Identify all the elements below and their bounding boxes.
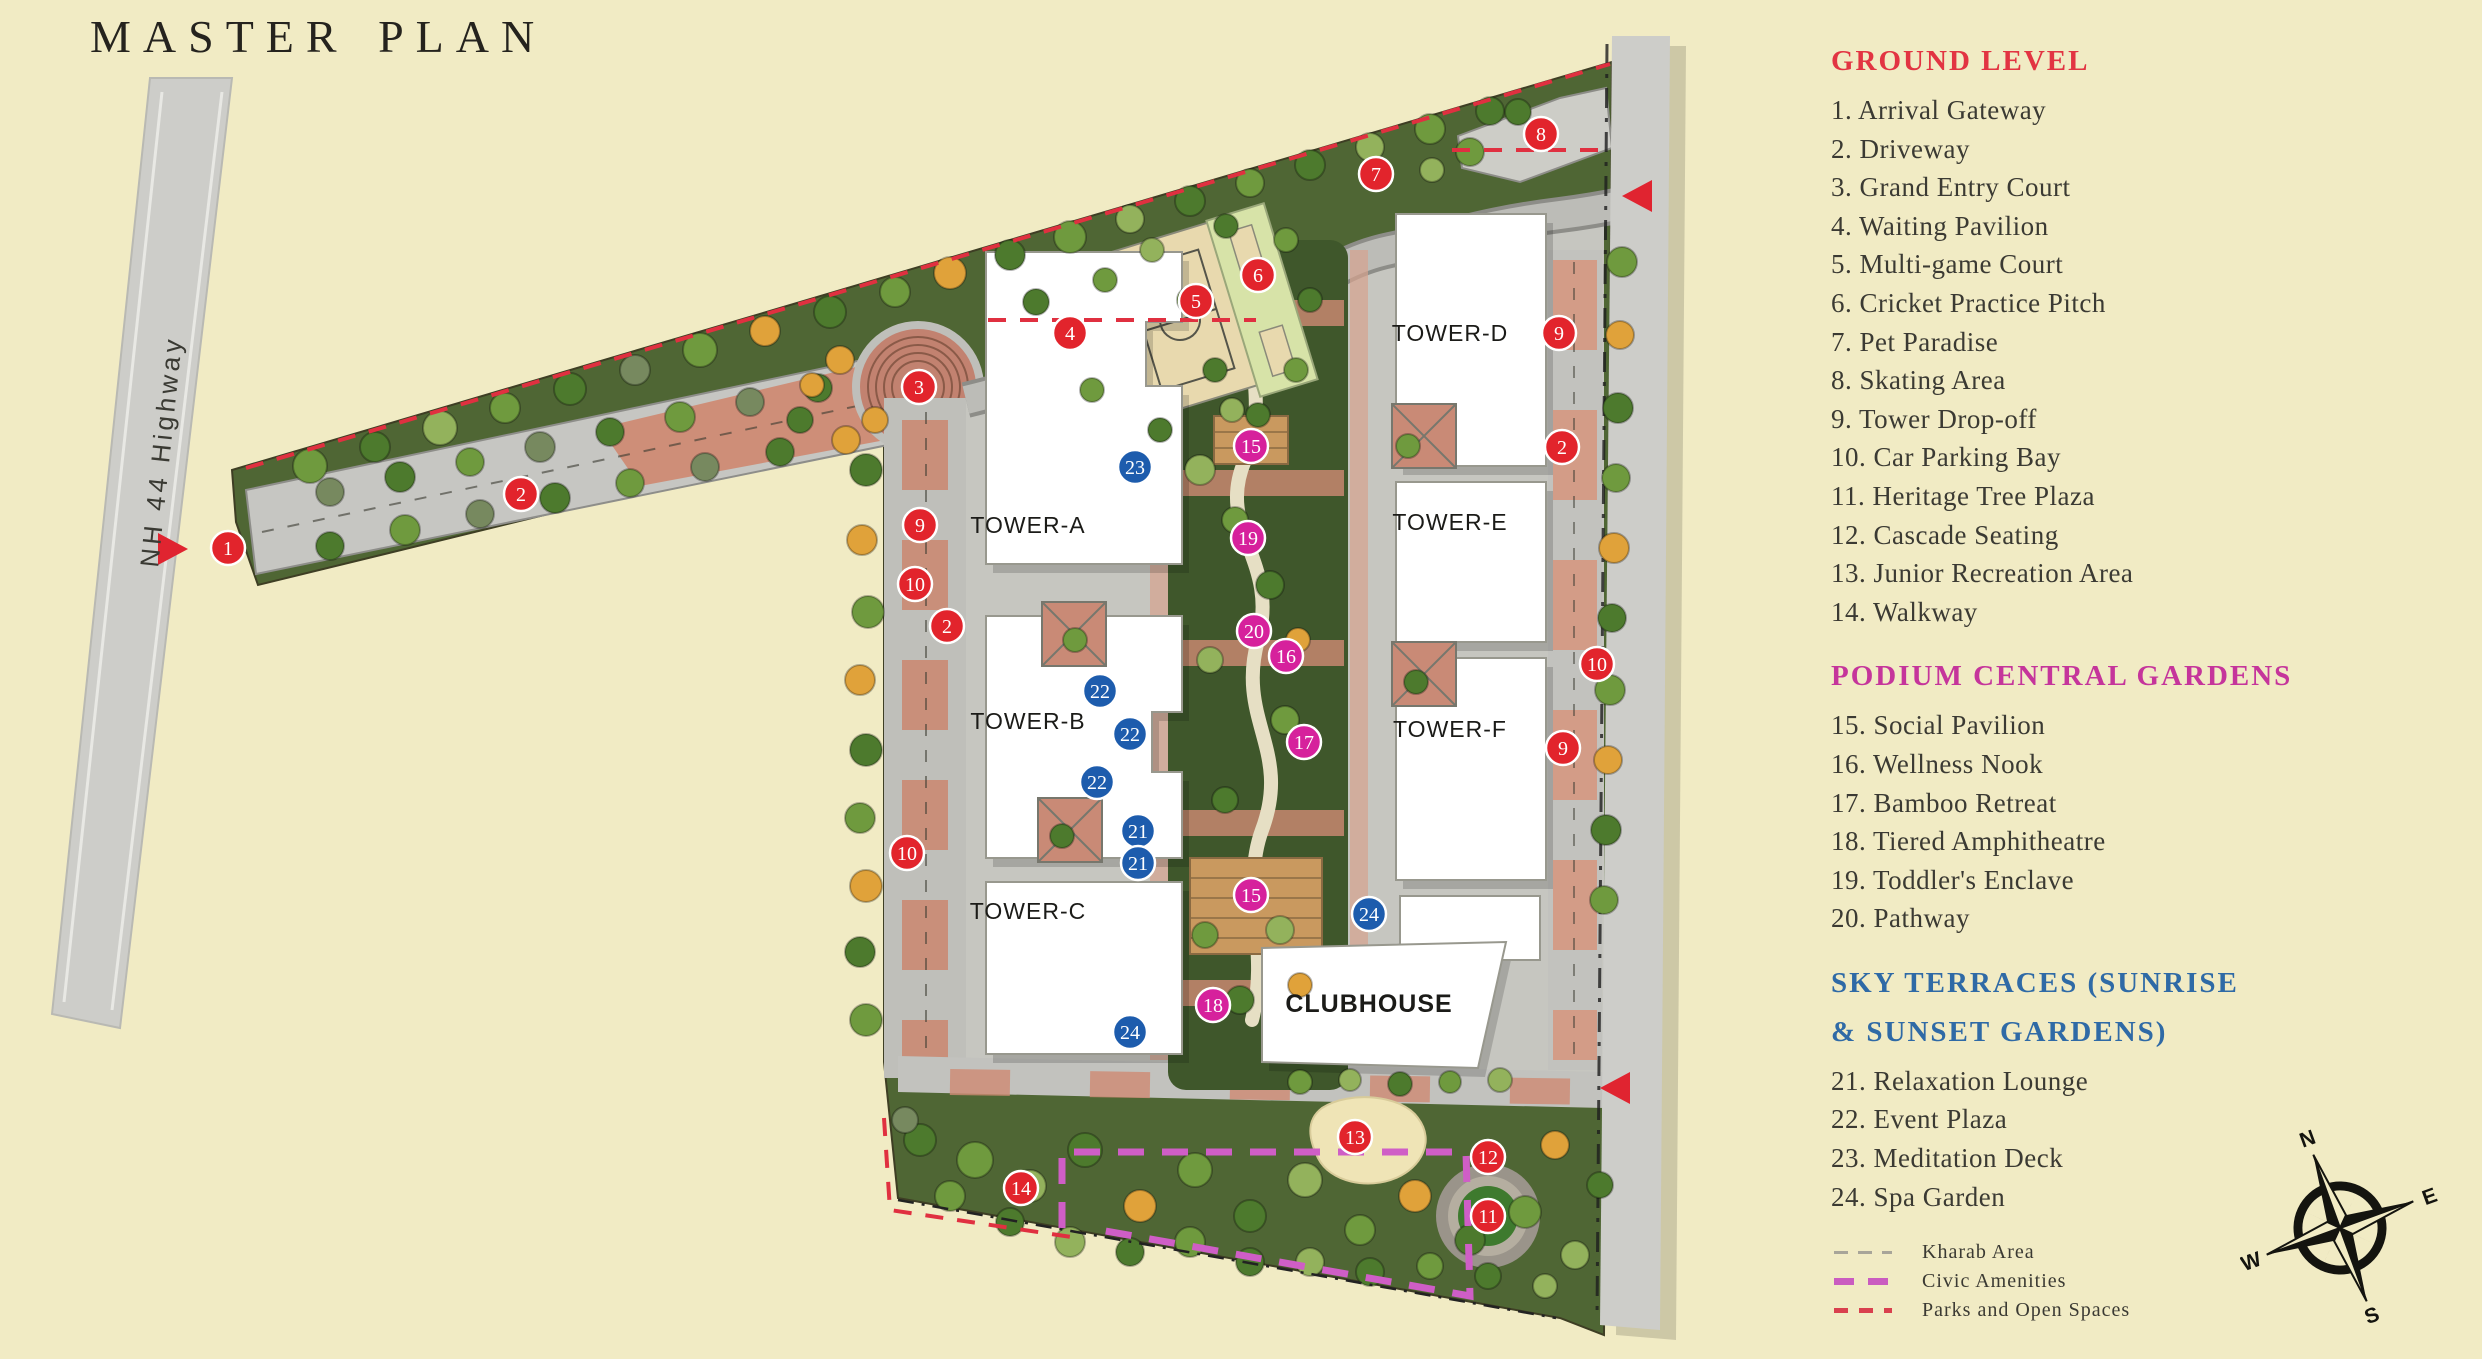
tree [1256,571,1284,599]
legend-item: 11. Heritage Tree Plaza [1831,477,2391,516]
plan-marker-2: 2 [930,609,964,643]
legend-section-ground-level: GROUND LEVEL1. Arrival Gateway2. Drivewa… [1831,42,2391,631]
legend-item: 8. Skating Area [1831,361,2391,400]
tree [1541,1131,1569,1159]
tree [1192,922,1218,948]
dash-swatch [1834,1308,1892,1313]
tree [1591,815,1621,845]
svg-text:16: 16 [1276,646,1296,668]
plan-marker-16: 16 [1269,639,1303,673]
tree [596,418,624,446]
plan-marker-1: 1 [211,531,245,565]
plan-marker-9: 9 [903,508,937,542]
tree [996,1208,1024,1236]
svg-text:14: 14 [1011,1178,1031,1200]
tree [1288,1070,1312,1094]
line-legend-row: Civic Amenities [1834,1267,2130,1296]
svg-text:12: 12 [1478,1147,1498,1169]
legend-item: 10. Car Parking Bay [1831,438,2391,477]
legend-item: 19. Toddler's Enclave [1831,861,2391,900]
svg-text:3: 3 [914,377,924,399]
legend-item: 5. Multi-game Court [1831,245,2391,284]
compass-rose: N E S W [2240,1118,2440,1338]
plan-marker-12: 12 [1471,1140,1505,1174]
plan-marker-14: 14 [1004,1171,1038,1205]
tree [1603,393,1633,423]
svg-text:22: 22 [1087,772,1107,794]
plan-marker-13: 13 [1338,1120,1372,1154]
tree [1178,1153,1212,1187]
tree [1288,1163,1322,1197]
tree [525,432,555,462]
legend-item: 6. Cricket Practice Pitch [1831,284,2391,323]
plan-marker-4: 4 [1053,316,1087,350]
tree [1396,434,1420,458]
tree [850,454,882,486]
legend-item: 13. Junior Recreation Area [1831,554,2391,593]
tree [1533,1274,1557,1298]
legend-item: 7. Pet Paradise [1831,323,2391,362]
tree [957,1142,993,1178]
svg-text:19: 19 [1238,528,1258,550]
tree [845,665,875,695]
svg-text:9: 9 [915,515,925,537]
svg-text:24: 24 [1120,1022,1140,1044]
tree [750,316,780,346]
tree [826,346,854,374]
svg-text:10: 10 [905,574,925,596]
tree [1417,1253,1443,1279]
svg-text:24: 24 [1359,904,1379,926]
plan-marker-23: 23 [1118,450,1152,484]
compass-e: E [2419,1184,2440,1210]
tree [1339,1069,1361,1091]
tree [1345,1215,1375,1245]
tree [1214,214,1238,238]
svg-text:2: 2 [516,484,526,506]
tree [1509,1196,1541,1228]
plan-marker-22: 22 [1113,717,1147,751]
tree [1399,1180,1431,1212]
tree [845,937,875,967]
svg-text:5: 5 [1191,291,1201,313]
svg-text:15: 15 [1241,436,1261,458]
svg-text:10: 10 [897,843,917,865]
tree [385,462,415,492]
legend-item: 2. Driveway [1831,130,2391,169]
legend-item: 15. Social Pavilion [1831,706,2391,745]
plan-marker-3: 3 [902,370,936,404]
plan-marker-19: 19 [1231,521,1265,555]
plan-marker-24: 24 [1113,1015,1147,1049]
line-legend-label: Civic Amenities [1922,1270,2066,1293]
tree [1148,418,1172,442]
tree [766,438,794,466]
svg-text:2: 2 [942,616,952,638]
legend-item: 4. Waiting Pavilion [1831,207,2391,246]
tree [316,532,344,560]
tree [1598,604,1626,632]
tree [1298,288,1322,312]
svg-text:17: 17 [1294,732,1314,754]
plan-marker-9: 9 [1546,731,1580,765]
svg-text:8: 8 [1536,124,1546,146]
building-label: TOWER-E [1392,509,1507,535]
tree [850,1004,882,1036]
svg-text:22: 22 [1090,681,1110,703]
tree [1602,464,1630,492]
plan-marker-5: 5 [1179,284,1213,318]
svg-text:1: 1 [223,538,233,560]
svg-text:21: 21 [1128,821,1148,843]
svg-text:22: 22 [1120,724,1140,746]
tree [845,803,875,833]
line-type-legend: Kharab AreaCivic AmenitiesParks and Open… [1834,1238,2130,1325]
svg-text:23: 23 [1125,457,1145,479]
plan-marker-20: 20 [1237,614,1271,648]
tree [1587,1172,1613,1198]
legend-item: 9. Tower Drop-off [1831,400,2391,439]
svg-text:4: 4 [1065,323,1075,345]
svg-text:9: 9 [1554,323,1564,345]
tree [1246,403,1270,427]
svg-text:21: 21 [1128,853,1148,875]
line-legend-row: Parks and Open Spaces [1834,1296,2130,1325]
legend-item: 21. Relaxation Lounge [1831,1062,2391,1101]
building-label: TOWER-D [1392,320,1508,346]
tree [1599,533,1629,563]
plan-marker-8: 8 [1524,117,1558,151]
tree [1296,1248,1324,1276]
svg-text:13: 13 [1345,1127,1365,1149]
plan-marker-10: 10 [898,567,932,601]
plan-marker-11: 11 [1471,1199,1505,1233]
legend-heading: PODIUM CENTRAL GARDENS [1831,657,2391,696]
plan-marker-9: 9 [1542,316,1576,350]
master-plan-page: 1234567892109910210131214111519201617151… [0,0,2482,1359]
legend-panel: GROUND LEVEL1. Arrival Gateway2. Drivewa… [1831,42,2391,1242]
tree [1197,647,1223,673]
tree [316,478,344,506]
compass-s: S [2361,1303,2382,1329]
legend-heading: GROUND LEVEL [1831,42,2391,81]
plan-marker-18: 18 [1196,988,1230,1022]
plan-marker-10: 10 [1580,647,1614,681]
tree [736,388,764,416]
tree [852,596,884,628]
tree [800,373,824,397]
svg-text:18: 18 [1203,995,1223,1017]
tree [390,515,420,545]
tree [1388,1072,1412,1096]
plan-marker-2: 2 [1545,430,1579,464]
tree [554,373,586,405]
svg-text:11: 11 [1478,1206,1497,1228]
plan-marker-6: 6 [1241,258,1275,292]
svg-text:10: 10 [1587,654,1607,676]
tree [850,870,882,902]
building-label: TOWER-F [1393,716,1507,742]
legend-item: 3. Grand Entry Court [1831,168,2391,207]
tree [1080,378,1104,402]
legend-item: 1. Arrival Gateway [1831,91,2391,130]
plan-marker-21: 21 [1121,814,1155,848]
tree [1420,158,1444,182]
tree [1505,99,1531,125]
tree [665,402,695,432]
compass-w: W [2240,1248,2265,1276]
tree [1140,238,1164,262]
tree [1023,289,1049,315]
line-legend-label: Parks and Open Spaces [1922,1299,2130,1322]
tree [880,277,910,307]
legend-heading: & SUNSET GARDENS) [1831,1013,2391,1052]
legend-heading: SKY TERRACES (SUNRISE [1831,964,2391,1003]
plan-marker-7: 7 [1359,157,1393,191]
tree [1203,358,1227,382]
svg-text:2: 2 [1557,437,1567,459]
tree [1093,268,1117,292]
legend-section-podium-gardens: PODIUM CENTRAL GARDENS15. Social Pavilio… [1831,657,2391,938]
tree [293,449,327,483]
building-label: TOWER-B [970,708,1085,734]
legend-item: 16. Wellness Nook [1831,745,2391,784]
tower-e-footprint [1396,482,1546,642]
legend-item: 17. Bamboo Retreat [1831,784,2391,823]
tree [1561,1241,1589,1269]
plan-marker-17: 17 [1287,725,1321,759]
tree [1475,1263,1501,1289]
tree [1234,1200,1266,1232]
tree [1439,1071,1461,1093]
tree [832,426,860,454]
compass-n: N [2297,1126,2319,1153]
plan-marker-15: 15 [1234,878,1268,912]
plan-marker-10: 10 [890,836,924,870]
tree [1266,916,1294,944]
tree [691,453,719,481]
tree [847,525,877,555]
plan-marker-22: 22 [1080,765,1114,799]
line-legend-row: Kharab Area [1834,1238,2130,1267]
tree [466,500,494,528]
tree [934,257,966,289]
tree [1274,228,1298,252]
page-title: MASTER PLAN [90,10,546,63]
tree [787,407,813,433]
tree [1185,455,1215,485]
tree [1050,824,1074,848]
tree [1175,1227,1205,1257]
line-legend-label: Kharab Area [1922,1241,2035,1264]
tree [360,432,390,462]
legend-item: 14. Walkway [1831,593,2391,632]
tree [456,448,484,476]
svg-text:6: 6 [1253,265,1263,287]
tree [423,411,457,445]
tree [1607,247,1637,277]
legend-item: 12. Cascade Seating [1831,516,2391,555]
building-label: TOWER-C [970,898,1086,924]
tree [1404,670,1428,694]
tree [850,734,882,766]
tree [1488,1068,1512,1092]
plan-marker-22: 22 [1083,674,1117,708]
tree [540,483,570,513]
building-label: TOWER-A [970,512,1085,538]
tree [1124,1190,1156,1222]
dash-swatch [1834,1251,1892,1254]
plan-marker-15: 15 [1234,429,1268,463]
tree [616,469,644,497]
plan-marker-2: 2 [504,477,538,511]
tree [1063,628,1087,652]
plan-marker-24: 24 [1352,897,1386,931]
legend-item: 18. Tiered Amphitheatre [1831,822,2391,861]
tree [620,355,650,385]
tree [1594,746,1622,774]
legend-item: 20. Pathway [1831,899,2391,938]
plan-marker-21: 21 [1121,846,1155,880]
tree [1590,886,1618,914]
tree [1284,358,1308,382]
svg-text:20: 20 [1244,621,1264,643]
svg-text:15: 15 [1241,885,1261,907]
tree [862,407,888,433]
tree [490,393,520,423]
tree [1220,398,1244,422]
tree [1212,787,1238,813]
tree [814,296,846,328]
tree [1606,321,1634,349]
dash-swatch [1834,1278,1892,1285]
tree [892,1107,918,1133]
building-label: CLUBHOUSE [1285,990,1452,1018]
svg-text:9: 9 [1558,738,1568,760]
svg-text:7: 7 [1371,164,1381,186]
